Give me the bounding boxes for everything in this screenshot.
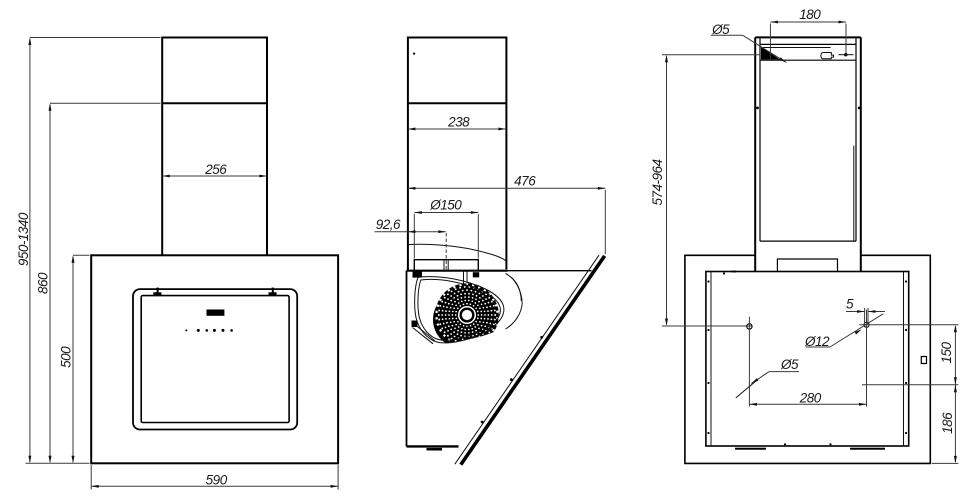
svg-text:950-1340: 950-1340: [16, 212, 31, 266]
svg-text:476: 476: [514, 174, 536, 189]
svg-text:Ø5: Ø5: [711, 22, 730, 37]
svg-text:256: 256: [204, 162, 227, 177]
svg-text:860: 860: [35, 272, 50, 294]
svg-text:Ø150: Ø150: [429, 198, 462, 213]
svg-text:238: 238: [447, 115, 470, 130]
svg-text:574-964: 574-964: [650, 159, 665, 205]
svg-text:500: 500: [58, 346, 73, 368]
svg-text:186: 186: [940, 412, 955, 434]
svg-text:Ø12: Ø12: [804, 334, 830, 349]
svg-text:92,6: 92,6: [376, 217, 401, 232]
svg-text:5: 5: [846, 297, 854, 312]
svg-text:150: 150: [939, 341, 954, 363]
svg-text:Ø5: Ø5: [780, 357, 799, 372]
svg-text:590: 590: [206, 472, 228, 487]
svg-text:180: 180: [799, 7, 821, 22]
svg-text:280: 280: [799, 390, 822, 405]
